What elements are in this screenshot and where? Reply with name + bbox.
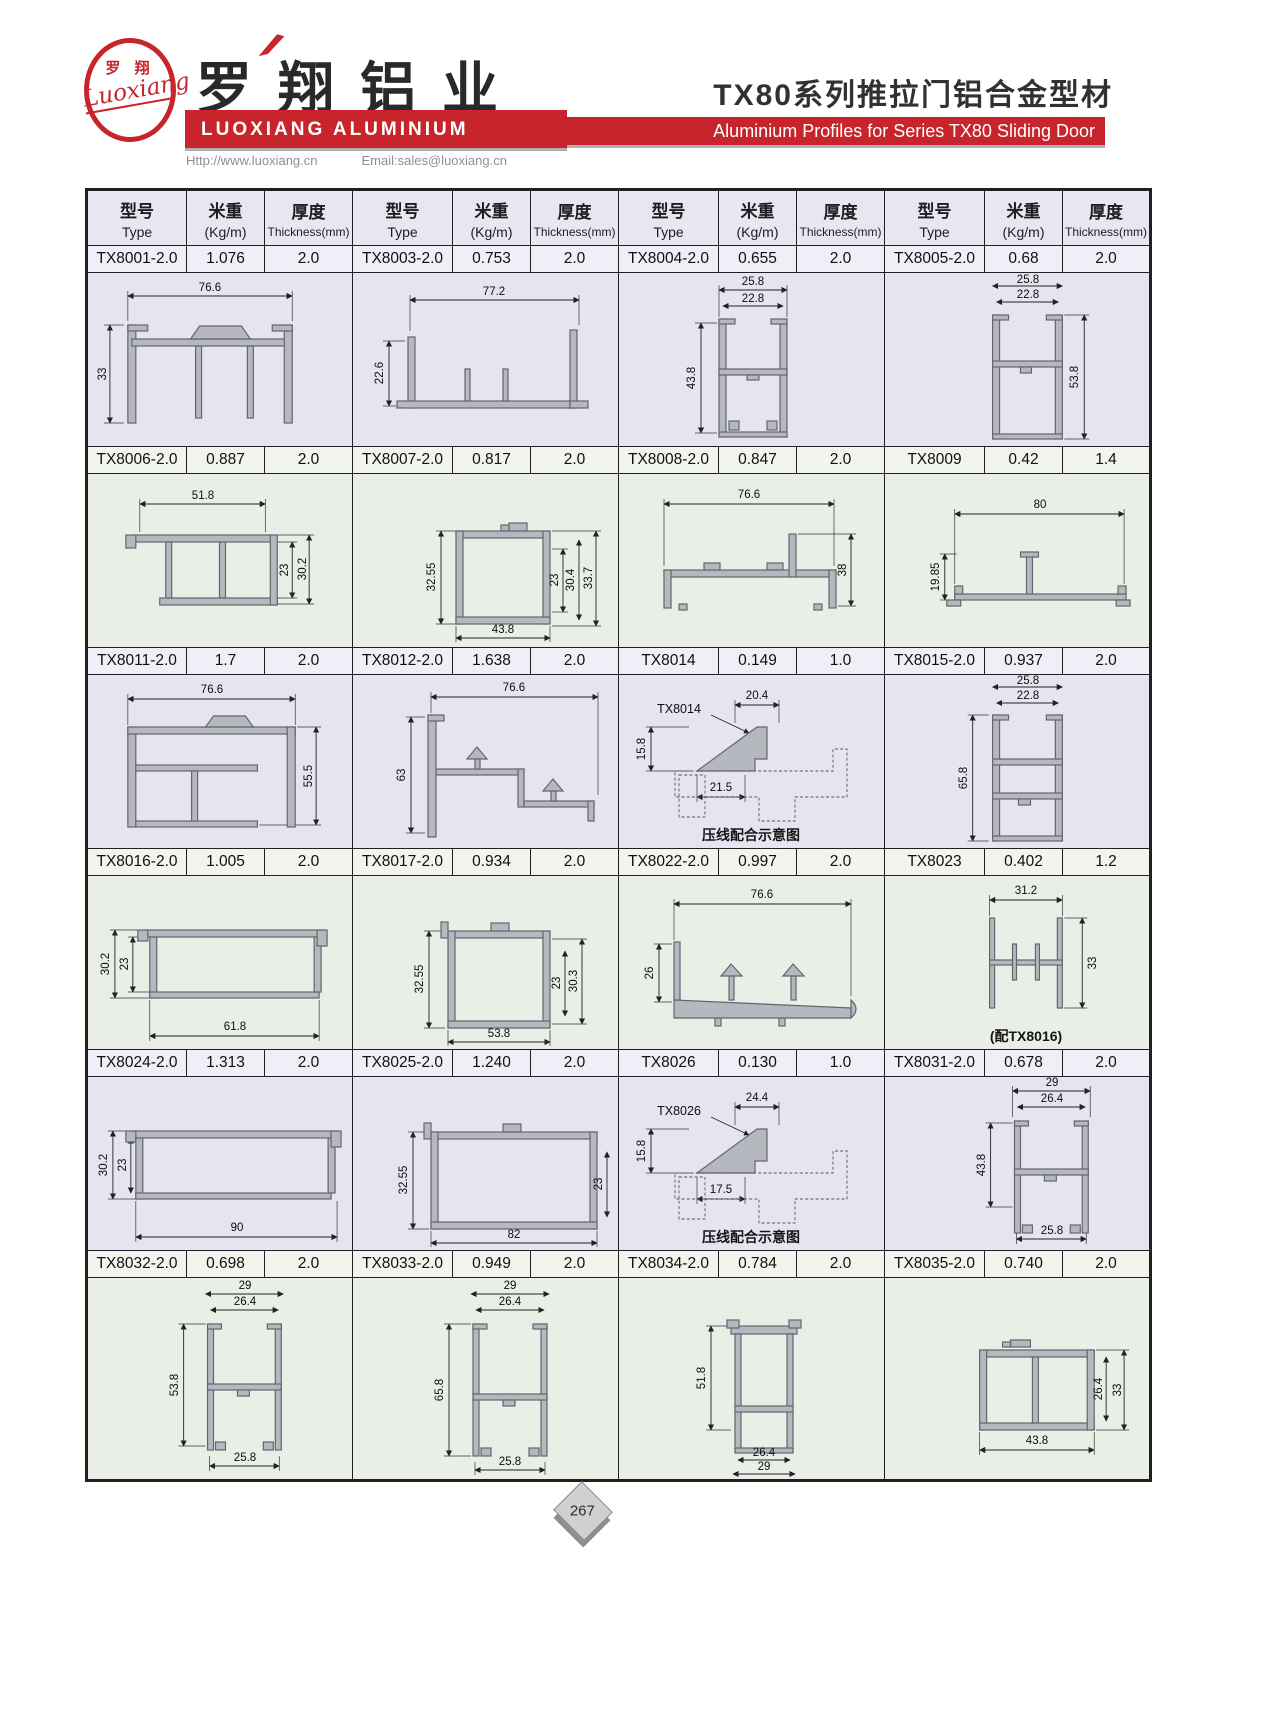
profile-sketch	[88, 273, 352, 446]
company-name-en: LUOXIANG ALUMINIUM	[201, 119, 469, 141]
drawing-TX8017: 32.55 23 30.3 53.8	[353, 876, 619, 1050]
drawing-row-1: 76.6 33 77.2 22.6 25.8 22.8 43.8 25.8 22…	[87, 273, 1151, 447]
value-row-3: TX8011-2.0 1.7 2.0 TX8012-2.0 1.638 2.0 …	[87, 648, 1151, 675]
profile-sketch	[353, 474, 618, 647]
dim-label: 43.8	[492, 624, 514, 636]
profile-callout-label: TX8014	[657, 702, 701, 716]
dim-label: 23	[117, 1159, 129, 1172]
drawing-TX8024: 30.2 23 90	[87, 1077, 353, 1251]
profile-thickness: 1.0	[797, 1050, 885, 1077]
profile-sketch	[885, 1278, 1149, 1479]
col-header-type: 型号Type	[885, 190, 985, 246]
dim-label: 55.5	[303, 765, 315, 787]
table-header-row: 型号Type 米重(Kg/m) 厚度Thickness(mm) 型号Type 米…	[87, 190, 1151, 246]
profile-sketch	[885, 1077, 1149, 1250]
drawing-TX8023: 31.2 33 (配TX8016)	[885, 876, 1151, 1050]
profile-weight: 1.7	[187, 648, 265, 675]
dim-label: 23	[593, 1178, 605, 1191]
diagram-caption: 压线配合示意图	[702, 825, 800, 845]
dim-label: 25.8	[234, 1452, 256, 1464]
dim-label: 15.8	[636, 1140, 648, 1162]
profile-thickness: 2.0	[797, 1251, 885, 1278]
profile-type: TX8022-2.0	[619, 849, 719, 876]
profile-weight: 0.847	[719, 447, 797, 474]
profile-weight: 0.887	[187, 447, 265, 474]
dim-label: 76.6	[503, 682, 525, 694]
profile-weight: 0.753	[453, 246, 531, 273]
profile-sketch	[885, 876, 1149, 1049]
col-header-thickness: 厚度Thickness(mm)	[1063, 190, 1151, 246]
dim-label: 30.2	[98, 1154, 110, 1176]
dim-label: 26	[644, 967, 656, 980]
value-row-6: TX8032-2.0 0.698 2.0 TX8033-2.0 0.949 2.…	[87, 1251, 1151, 1278]
page-number: 267	[570, 1502, 595, 1519]
profile-weight: 0.784	[719, 1251, 797, 1278]
profile-thickness: 2.0	[1063, 1050, 1151, 1077]
website-url: Http://www.luoxiang.cn	[186, 153, 318, 168]
profile-thickness: 2.0	[1063, 648, 1151, 675]
drawing-TX8001: 76.6 33	[87, 273, 353, 447]
series-red-band: Aluminium Profiles for Series TX80 Slidi…	[567, 117, 1105, 145]
profile-thickness: 2.0	[797, 246, 885, 273]
col-header-type: 型号Type	[353, 190, 453, 246]
col-header-weight: 米重(Kg/m)	[985, 190, 1063, 246]
drawing-TX8026-diagram: TX8026 24.4 15.8 17.5 压线配合示意图	[619, 1077, 885, 1251]
dim-label: 22.6	[374, 362, 386, 384]
dim-label: 82	[508, 1229, 521, 1241]
dim-label: 76.6	[751, 889, 773, 901]
profile-thickness: 2.0	[265, 447, 353, 474]
dim-label: 90	[231, 1222, 244, 1234]
drawing-TX8009: 80 19.85	[885, 474, 1151, 648]
dim-label: 32.55	[426, 563, 438, 592]
dim-label: 25.8	[1017, 675, 1039, 687]
profile-weight: 0.149	[719, 648, 797, 675]
profile-type: TX8033-2.0	[353, 1251, 453, 1278]
profile-thickness: 2.0	[265, 648, 353, 675]
dim-label: 31.2	[1015, 885, 1037, 897]
dim-label: 24.4	[746, 1092, 768, 1104]
profile-weight: 0.678	[985, 1050, 1063, 1077]
profile-type: TX8005-2.0	[885, 246, 985, 273]
dim-label: 30.3	[568, 970, 580, 992]
drawing-TX8006: 51.8 23 30.2	[87, 474, 353, 648]
profile-thickness: 1.2	[1063, 849, 1151, 876]
dim-label: 19.85	[930, 563, 942, 592]
drawing-TX8004: 25.8 22.8 43.8	[619, 273, 885, 447]
profile-weight: 0.817	[453, 447, 531, 474]
profile-type: TX8007-2.0	[353, 447, 453, 474]
profile-thickness: 2.0	[265, 1050, 353, 1077]
profile-type: TX8006-2.0	[87, 447, 187, 474]
profile-thickness: 2.0	[265, 246, 353, 273]
pairing-note: (配TX8016)	[990, 1026, 1062, 1046]
email-address: Email:sales@luoxiang.cn	[362, 153, 507, 168]
drawing-row-6: 29 26.4 53.8 25.8 29 26.4 65.8 25.8 51.8…	[87, 1278, 1151, 1481]
dim-label: 43.8	[1026, 1435, 1048, 1447]
dim-label: 26.4	[499, 1296, 521, 1308]
profile-thickness: 2.0	[1063, 246, 1151, 273]
drawing-TX8032: 29 26.4 53.8 25.8	[87, 1278, 353, 1481]
dim-label: 33	[97, 368, 109, 381]
col-header-type: 型号Type	[619, 190, 719, 246]
dim-label: 43.8	[976, 1154, 988, 1176]
value-row-2: TX8006-2.0 0.887 2.0 TX8007-2.0 0.817 2.…	[87, 447, 1151, 474]
profile-weight: 0.402	[985, 849, 1063, 876]
profile-thickness: 1.0	[797, 648, 885, 675]
profile-type: TX8016-2.0	[87, 849, 187, 876]
dim-label: 32.55	[398, 1166, 410, 1195]
profile-type: TX8011-2.0	[87, 648, 187, 675]
profile-weight: 1.313	[187, 1050, 265, 1077]
dim-label: 29	[758, 1461, 771, 1473]
profile-thickness: 2.0	[797, 849, 885, 876]
dim-label: 21.5	[710, 782, 732, 794]
dim-label: 22.8	[742, 293, 764, 305]
profile-thickness: 2.0	[531, 1050, 619, 1077]
drawing-row-3: 76.6 55.5 76.6 63 TX8014 20.4 15.8 21.5 …	[87, 675, 1151, 849]
dim-label: 23	[551, 977, 563, 990]
dim-label: 30.4	[565, 569, 577, 591]
profile-type: TX8004-2.0	[619, 246, 719, 273]
dim-label: 23	[549, 574, 561, 587]
dim-label: 51.8	[696, 1367, 708, 1389]
profile-weight: 0.949	[453, 1251, 531, 1278]
dim-label: 33.7	[583, 567, 595, 589]
profile-thickness: 2.0	[531, 1251, 619, 1278]
drawing-TX8007: 32.55 43.8 23 30.4 33.7	[353, 474, 619, 648]
profile-type: TX8031-2.0	[885, 1050, 985, 1077]
drawing-TX8008: 76.6 38	[619, 474, 885, 648]
dim-label: 20.4	[746, 690, 768, 702]
drawing-TX8034: 51.8 26.4 29	[619, 1278, 885, 1481]
profile-weight: 1.240	[453, 1050, 531, 1077]
dim-label: 25.8	[742, 276, 764, 288]
drawing-TX8025: 32.55 23 82	[353, 1077, 619, 1251]
profile-weight: 0.934	[453, 849, 531, 876]
dim-label: 26.4	[1093, 1378, 1105, 1400]
col-header-weight: 米重(Kg/m)	[187, 190, 265, 246]
drawing-TX8011: 76.6 55.5	[87, 675, 353, 849]
profile-weight: 0.655	[719, 246, 797, 273]
dim-label: 76.6	[738, 489, 760, 501]
profile-weight: 0.740	[985, 1251, 1063, 1278]
profile-type: TX8026	[619, 1050, 719, 1077]
dim-label: 23	[279, 564, 291, 577]
page-number-diamond: 267	[553, 1481, 613, 1541]
profile-sketch	[885, 474, 1149, 647]
brand-red-band: LUOXIANG ALUMINIUM	[185, 110, 567, 148]
dim-label: 53.8	[169, 1374, 181, 1396]
profile-weight: 0.937	[985, 648, 1063, 675]
diagram-caption: 压线配合示意图	[702, 1227, 800, 1247]
profile-weight: 0.42	[985, 447, 1063, 474]
dim-label: 30.2	[100, 953, 112, 975]
value-row-5: TX8024-2.0 1.313 2.0 TX8025-2.0 1.240 2.…	[87, 1050, 1151, 1077]
series-title-en: Aluminium Profiles for Series TX80 Slidi…	[567, 117, 1105, 145]
profile-type: TX8034-2.0	[619, 1251, 719, 1278]
dim-label: 29	[504, 1280, 517, 1292]
contact-line: Http://www.luoxiang.cnEmail:sales@luoxia…	[186, 153, 507, 168]
profile-sketch	[619, 876, 884, 1049]
profile-weight: 0.997	[719, 849, 797, 876]
drawing-TX8003: 77.2 22.6	[353, 273, 619, 447]
profile-callout-label: TX8026	[657, 1104, 701, 1118]
profile-type: TX8001-2.0	[87, 246, 187, 273]
dim-label: 76.6	[199, 282, 221, 294]
dim-label: 25.8	[499, 1456, 521, 1468]
dim-label: 80	[1034, 499, 1047, 511]
dim-label: 23	[119, 958, 131, 971]
profile-type: TX8017-2.0	[353, 849, 453, 876]
drawing-row-2: 51.8 23 30.2 32.55 43.8 23 30.4 33.7 76.…	[87, 474, 1151, 648]
profile-sketch	[88, 675, 352, 848]
dim-label: 33	[1112, 1384, 1124, 1397]
dim-label: 38	[837, 564, 849, 577]
dim-label: 26.4	[753, 1447, 775, 1459]
profile-thickness: 2.0	[531, 648, 619, 675]
profile-weight: 0.68	[985, 246, 1063, 273]
profile-thickness: 2.0	[265, 849, 353, 876]
series-title-zh: TX80系列推拉门铝合金型材	[713, 70, 1113, 114]
dim-label: 26.4	[1041, 1093, 1063, 1105]
dim-label: 30.2	[297, 558, 309, 580]
col-header-thickness: 厚度Thickness(mm)	[531, 190, 619, 246]
profile-weight: 0.698	[187, 1251, 265, 1278]
dim-label: 65.8	[958, 767, 970, 789]
col-header-weight: 米重(Kg/m)	[453, 190, 531, 246]
profile-sketch	[619, 1278, 884, 1479]
col-header-type: 型号Type	[87, 190, 187, 246]
profile-type: TX8009	[885, 447, 985, 474]
value-row-4: TX8016-2.0 1.005 2.0 TX8017-2.0 0.934 2.…	[87, 849, 1151, 876]
profile-sketch	[88, 1278, 352, 1479]
luoxiang-logo: 罗 翔 Luoxiang	[84, 38, 176, 142]
profile-thickness: 2.0	[531, 246, 619, 273]
profile-thickness: 2.0	[531, 849, 619, 876]
drawing-TX8005: 25.8 22.8 53.8	[885, 273, 1151, 447]
dim-label: 77.2	[483, 286, 505, 298]
dim-label: 17.5	[710, 1184, 732, 1196]
profile-weight: 0.130	[719, 1050, 797, 1077]
profile-thickness: 2.0	[531, 447, 619, 474]
profile-sketch	[88, 474, 352, 647]
profile-type: TX8025-2.0	[353, 1050, 453, 1077]
drawing-row-5: 30.2 23 90 32.55 23 82 TX8026 24.4 15.8 …	[87, 1077, 1151, 1251]
dim-label: 22.8	[1017, 690, 1039, 702]
profile-type: TX8015-2.0	[885, 648, 985, 675]
drawing-TX8031: 29 26.4 43.8 25.8	[885, 1077, 1151, 1251]
dim-label: 29	[1046, 1077, 1059, 1089]
drawing-TX8016: 30.2 23 61.8	[87, 876, 353, 1050]
profile-type: TX8024-2.0	[87, 1050, 187, 1077]
profile-type: TX8023	[885, 849, 985, 876]
col-header-thickness: 厚度Thickness(mm)	[797, 190, 885, 246]
profile-weight: 1.076	[187, 246, 265, 273]
profile-type: TX8003-2.0	[353, 246, 453, 273]
dim-label: 32.55	[414, 965, 426, 994]
profile-type: TX8012-2.0	[353, 648, 453, 675]
profile-type: TX8008-2.0	[619, 447, 719, 474]
profile-sketch	[353, 1077, 618, 1250]
dim-label: 22.8	[1017, 289, 1039, 301]
col-header-thickness: 厚度Thickness(mm)	[265, 190, 353, 246]
dim-label: 43.8	[686, 367, 698, 389]
dim-label: 61.8	[224, 1021, 246, 1033]
dim-label: 65.8	[434, 1379, 446, 1401]
dim-label: 33	[1087, 957, 1099, 970]
dim-label: 15.8	[636, 738, 648, 760]
profile-thickness: 2.0	[265, 1251, 353, 1278]
profile-thickness: 2.0	[797, 447, 885, 474]
dim-label: 53.8	[488, 1028, 510, 1040]
profile-type: TX8035-2.0	[885, 1251, 985, 1278]
profile-sketch	[353, 876, 618, 1049]
drawing-TX8014-diagram: TX8014 20.4 15.8 21.5 压线配合示意图	[619, 675, 885, 849]
profiles-table: 型号Type 米重(Kg/m) 厚度Thickness(mm) 型号Type 米…	[85, 188, 1152, 1482]
drawing-row-4: 30.2 23 61.8 32.55 23 30.3 53.8 76.6 26 …	[87, 876, 1151, 1050]
profile-thickness: 2.0	[1063, 1251, 1151, 1278]
profile-sketch	[353, 273, 618, 446]
profile-type: TX8032-2.0	[87, 1251, 187, 1278]
profile-type: TX8014	[619, 648, 719, 675]
profile-sketch	[353, 1278, 618, 1479]
drawing-TX8022: 76.6 26	[619, 876, 885, 1050]
col-header-weight: 米重(Kg/m)	[719, 190, 797, 246]
profile-weight: 1.638	[453, 648, 531, 675]
catalog-page: 罗 翔 Luoxiang 罗翔铝业 LUOXIANG ALUMINIUM Alu…	[0, 0, 1277, 1721]
drawing-TX8033: 29 26.4 65.8 25.8	[353, 1278, 619, 1481]
drawing-TX8015: 25.8 22.8 65.8	[885, 675, 1151, 849]
dim-label: 25.8	[1017, 274, 1039, 286]
value-row-1: TX8001-2.0 1.076 2.0 TX8003-2.0 0.753 2.…	[87, 246, 1151, 273]
dim-label: 29	[239, 1280, 252, 1292]
dim-label: 76.6	[201, 684, 223, 696]
profile-thickness: 1.4	[1063, 447, 1151, 474]
drawing-TX8035: 26.4 33 43.8	[885, 1278, 1151, 1481]
profile-sketch	[353, 675, 618, 848]
dim-label: 26.4	[234, 1296, 256, 1308]
dim-label: 53.8	[1069, 366, 1081, 388]
drawing-TX8012: 76.6 63	[353, 675, 619, 849]
dim-label: 51.8	[192, 490, 214, 502]
dim-label: 25.8	[1041, 1225, 1063, 1237]
profile-weight: 1.005	[187, 849, 265, 876]
dim-label: 63	[396, 769, 408, 782]
